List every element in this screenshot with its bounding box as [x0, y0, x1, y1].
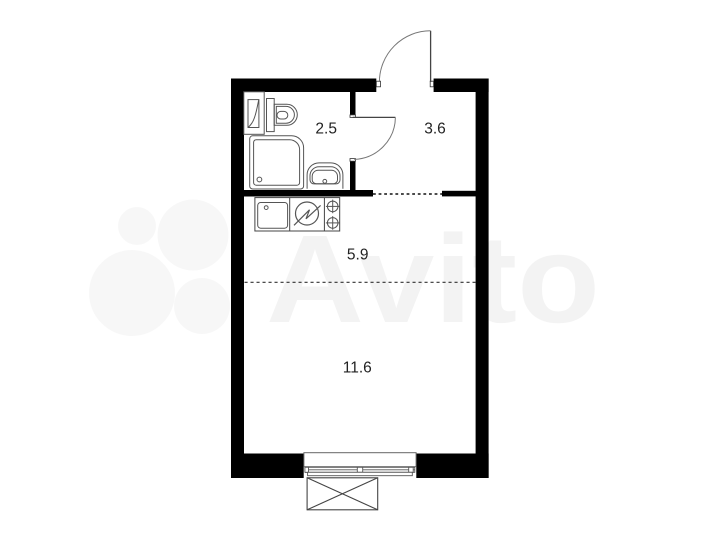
svg-text:11.6: 11.6	[343, 359, 372, 376]
svg-text:3.6: 3.6	[424, 121, 446, 138]
svg-text:5.9: 5.9	[347, 247, 369, 264]
svg-text:2.5: 2.5	[315, 120, 337, 137]
